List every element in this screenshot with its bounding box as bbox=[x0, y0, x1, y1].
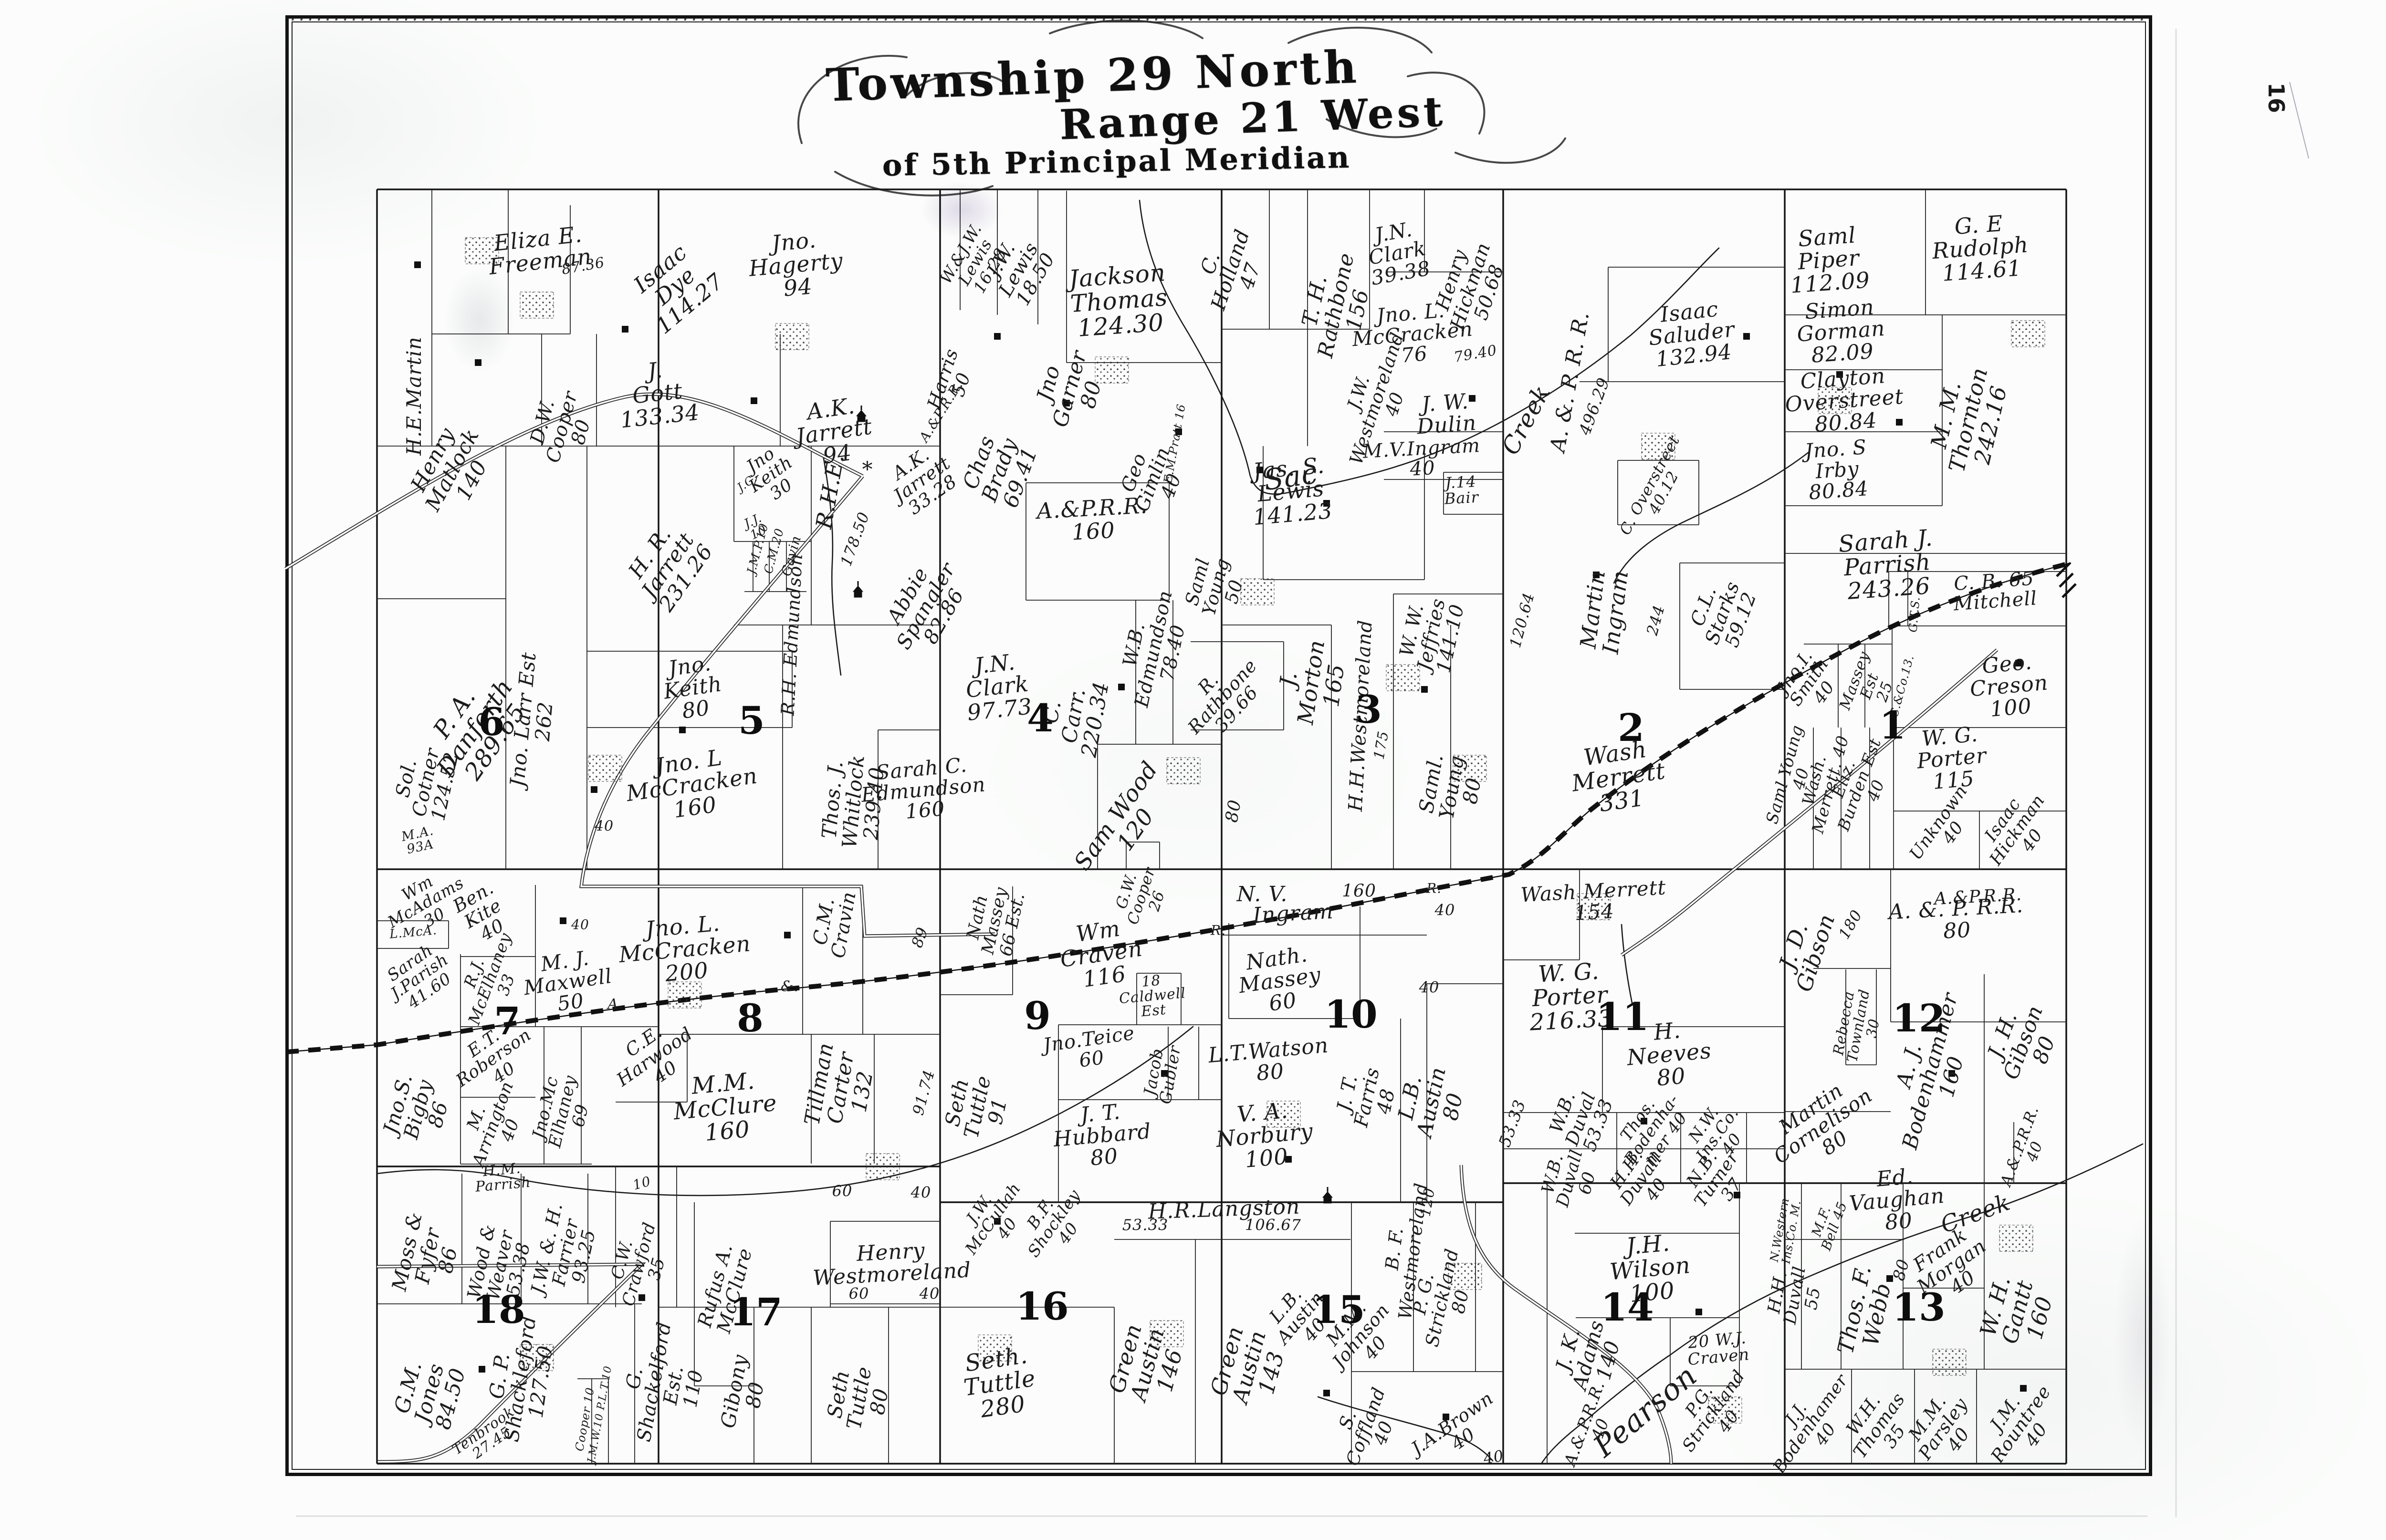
parcel-label: Jno. Keith 80 bbox=[659, 651, 727, 724]
parcel-label: 40 bbox=[1435, 902, 1455, 918]
section-number-3: 3 bbox=[1355, 687, 1382, 732]
parcel-label: 106.67 bbox=[1245, 1217, 1301, 1233]
parcel-label: J.14 Bair bbox=[1443, 474, 1479, 507]
section-number-14: 14 bbox=[1601, 1285, 1653, 1330]
creek-line bbox=[1622, 925, 1632, 1003]
road-lines bbox=[285, 394, 1997, 1464]
parcel-label: J. Morton 165 bbox=[1272, 635, 1351, 729]
parcel-label: Sarah J. Parrish 243.26 bbox=[1838, 526, 1937, 604]
parcel-label: A. bbox=[607, 997, 623, 1011]
parcel-label: G. E Rudolph 114.61 bbox=[1930, 210, 2031, 285]
parcel-label: 60 bbox=[832, 1183, 853, 1199]
atlas-page: Township 29 North Range 21 West of 5th P… bbox=[0, 0, 2386, 1540]
section-number-5: 5 bbox=[738, 698, 765, 743]
section-number-9: 9 bbox=[1024, 993, 1051, 1038]
parcel-label: A.&P.R.R. 160 bbox=[1036, 494, 1149, 546]
parcel-label: C. B. 65 Mitchell bbox=[1952, 569, 2038, 614]
parcel-label: M. J. Maxwell 50 bbox=[520, 945, 617, 1019]
section-number-16: 16 bbox=[1015, 1284, 1068, 1329]
parcel-label: Jno. S Irby 80.84 bbox=[1804, 437, 1871, 503]
parcel-label: 40 bbox=[1419, 979, 1440, 995]
section-number-8: 8 bbox=[737, 996, 764, 1041]
parcel-label: 160 bbox=[1342, 882, 1376, 900]
parcel-label: 40 bbox=[920, 1286, 940, 1301]
parcel-label: J.N. Clark 97.73 bbox=[962, 650, 1034, 725]
parcel-label: Jas. S. Lewis 141.23 bbox=[1248, 454, 1334, 529]
parcel-label: Ed. Vaughan 80 bbox=[1846, 1163, 1947, 1237]
parcel-label: Nath. Massey 60 bbox=[1235, 942, 1326, 1019]
parcel-label: &. bbox=[781, 979, 799, 994]
parcel-label: 40 bbox=[571, 917, 589, 931]
parcel-label: G.T.S. bbox=[1907, 596, 1922, 633]
parcel-label: J. W. Dulin bbox=[1414, 390, 1477, 438]
parcel-label: J. T. Farris 48 bbox=[1332, 1061, 1402, 1133]
section-number-12: 12 bbox=[1892, 996, 1945, 1041]
parcel-label: 40 bbox=[595, 819, 614, 833]
parcel-label: Henry Westmoreland bbox=[811, 1238, 972, 1290]
section-number-4: 4 bbox=[1027, 696, 1054, 740]
section-number-2: 2 bbox=[1618, 705, 1644, 750]
parcel-label: R. bbox=[1426, 881, 1442, 895]
parcel-label: Seth. Tuttle 280 bbox=[959, 1343, 1041, 1424]
parcel-label: M.M. McClure 160 bbox=[670, 1068, 780, 1148]
parcel-label: 40 bbox=[911, 1185, 931, 1200]
parcel-label: 80 bbox=[1223, 798, 1244, 824]
parcel-label: J. Gott 133.34 bbox=[614, 355, 701, 432]
parcel-label: J.N. Clark 39.38 bbox=[1362, 217, 1432, 289]
section-number-18: 18 bbox=[472, 1287, 525, 1332]
parcel-label: 60 bbox=[849, 1286, 869, 1301]
parcel-label: Seth Tuttle 91 bbox=[940, 1069, 1015, 1144]
parcel-label: A. &. P. R.R. 80 bbox=[1888, 895, 2025, 945]
parcel-label: Wash Merrett 154 bbox=[1520, 877, 1667, 926]
parcel-label: 40 bbox=[1482, 1448, 1505, 1467]
parcel-label: V. A. Norbury 100 bbox=[1213, 1097, 1316, 1174]
parcel-label: Saml. Young 80 bbox=[1415, 750, 1488, 824]
parcel-label: Seth Tuttle 80 bbox=[823, 1361, 895, 1435]
parcel-label: 53.33 bbox=[1122, 1217, 1169, 1233]
section-number-6: 6 bbox=[478, 699, 505, 744]
section-number-11: 11 bbox=[1596, 994, 1649, 1039]
parcel-label: Jno. L. McCracken 200 bbox=[616, 909, 753, 989]
parcel-label: Jackson Thomas 124.30 bbox=[1068, 260, 1171, 341]
section-number-15: 15 bbox=[1312, 1287, 1365, 1332]
parcel-label: Geo. Creson 100 bbox=[1967, 650, 2051, 722]
parcel-label: W. G. Porter 115 bbox=[1914, 723, 1989, 794]
parcel-label: Jno. Hagerty 94 bbox=[746, 227, 846, 303]
parcel-label: R. bbox=[1211, 923, 1226, 937]
parcel-label: Sarah C. Edmundson 160 bbox=[858, 753, 988, 826]
section-number-17: 17 bbox=[729, 1290, 782, 1334]
parcel-label: Simon Gorman 82.09 bbox=[1795, 296, 1887, 367]
page-corner-crease bbox=[2290, 82, 2309, 158]
junction-mark: * bbox=[862, 459, 873, 481]
parcel-label: 18 Caldwell Est bbox=[1117, 971, 1188, 1021]
parcel-label: H.E.Martin bbox=[404, 336, 425, 455]
parcel-label: H.H. Duvall 55 bbox=[1764, 1262, 1827, 1329]
parcel-label: Martin Ingram bbox=[1577, 566, 1632, 656]
section-number-1: 1 bbox=[1879, 703, 1906, 748]
page-number: 16 bbox=[2263, 83, 2289, 113]
parcel-label: Ingram bbox=[1252, 901, 1334, 927]
parcel-label: Saml Piper 112.09 bbox=[1787, 223, 1871, 297]
parcel-label: Clayton Overstreet 80.84 bbox=[1783, 364, 1906, 437]
section-number-13: 13 bbox=[1892, 1285, 1945, 1330]
section-number-10: 10 bbox=[1324, 992, 1377, 1037]
parcel-label: J. T. Hubbard 80 bbox=[1051, 1099, 1154, 1173]
parcel-label: H.M. Parrish bbox=[473, 1160, 532, 1195]
parcel-label: Isaac Saluder 132.94 bbox=[1645, 297, 1738, 371]
section-number-7: 7 bbox=[494, 999, 521, 1043]
